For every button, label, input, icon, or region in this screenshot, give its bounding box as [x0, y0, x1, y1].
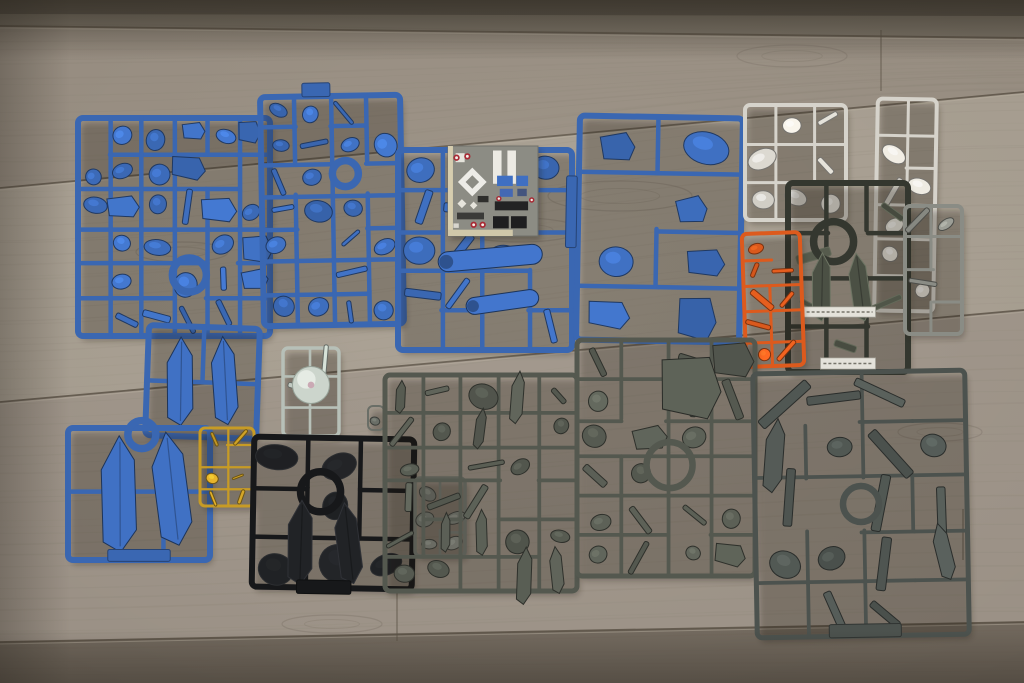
sprue-clear — [283, 345, 342, 441]
sprue-blue-a — [78, 118, 273, 341]
photo-model-kit-sprues — [0, 0, 1024, 683]
sprue-gray-g2 — [577, 340, 758, 581]
sprue-blue-d — [564, 115, 746, 347]
sprue-gray-g3 — [753, 370, 973, 643]
sprue-gold — [200, 428, 257, 511]
sprue-blue-b — [260, 81, 407, 331]
bottom-shadow-vignette — [0, 630, 1024, 683]
sprue-gray-side — [905, 206, 965, 339]
left-shadow-vignette — [0, 0, 70, 683]
sprue-blue-e2 — [68, 421, 213, 565]
sticker-sheet — [448, 146, 541, 240]
sprue-gray-g1 — [385, 370, 580, 605]
top-shadow-vignette — [0, 0, 1024, 60]
photo-canvas — [0, 0, 1024, 683]
